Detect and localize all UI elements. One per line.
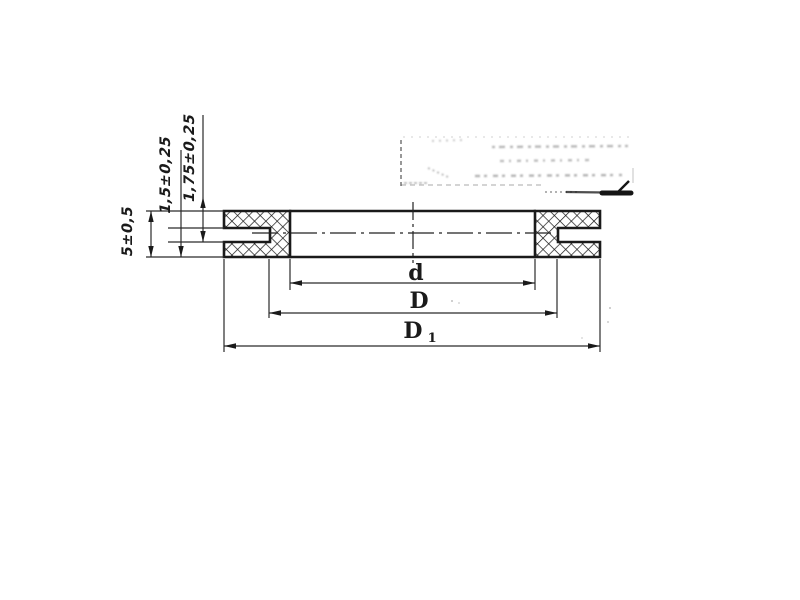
arrowhead-right-icon <box>545 310 557 316</box>
arrowhead-down-icon <box>148 246 153 257</box>
grommet-section-drawing: 5±0,5 1,5±0,25 1,75±0,25 d D D 1 <box>0 0 800 600</box>
arrowhead-left-icon <box>224 343 236 349</box>
inner-diameter-label: d <box>408 260 423 286</box>
scan-speckles <box>451 300 611 339</box>
arrowhead-left-icon <box>269 310 281 316</box>
arrowhead-down-icon <box>178 246 183 257</box>
arrowhead-up-icon <box>148 211 153 222</box>
outer-diameter-label-subscript: 1 <box>428 331 437 346</box>
arrowhead-right-icon <box>523 280 535 286</box>
outer-diameter-label-base: D <box>403 318 422 344</box>
illegible-stamp <box>401 137 633 194</box>
arrowhead-up-icon <box>200 197 205 208</box>
flange-thickness-label: 1,75±0,25 <box>181 112 198 204</box>
arrowhead-left-icon <box>290 280 302 286</box>
outer-diameter-label: D 1 <box>403 318 436 346</box>
stamp-illegible-text <box>404 140 628 183</box>
left-section-hatched-body <box>224 211 290 257</box>
groove-width-label: 1,5±0,25 <box>157 134 174 216</box>
groove-diameter-label: D <box>409 288 428 314</box>
stamp-smudge <box>545 168 633 194</box>
overall-thickness-label: 5±0,5 <box>119 205 136 258</box>
right-section-hatched-body <box>535 211 600 257</box>
arrowhead-right-icon <box>588 343 600 349</box>
technical-drawing-page: 5±0,5 1,5±0,25 1,75±0,25 d D D 1 <box>0 0 800 600</box>
arrowhead-down-icon <box>200 231 205 242</box>
